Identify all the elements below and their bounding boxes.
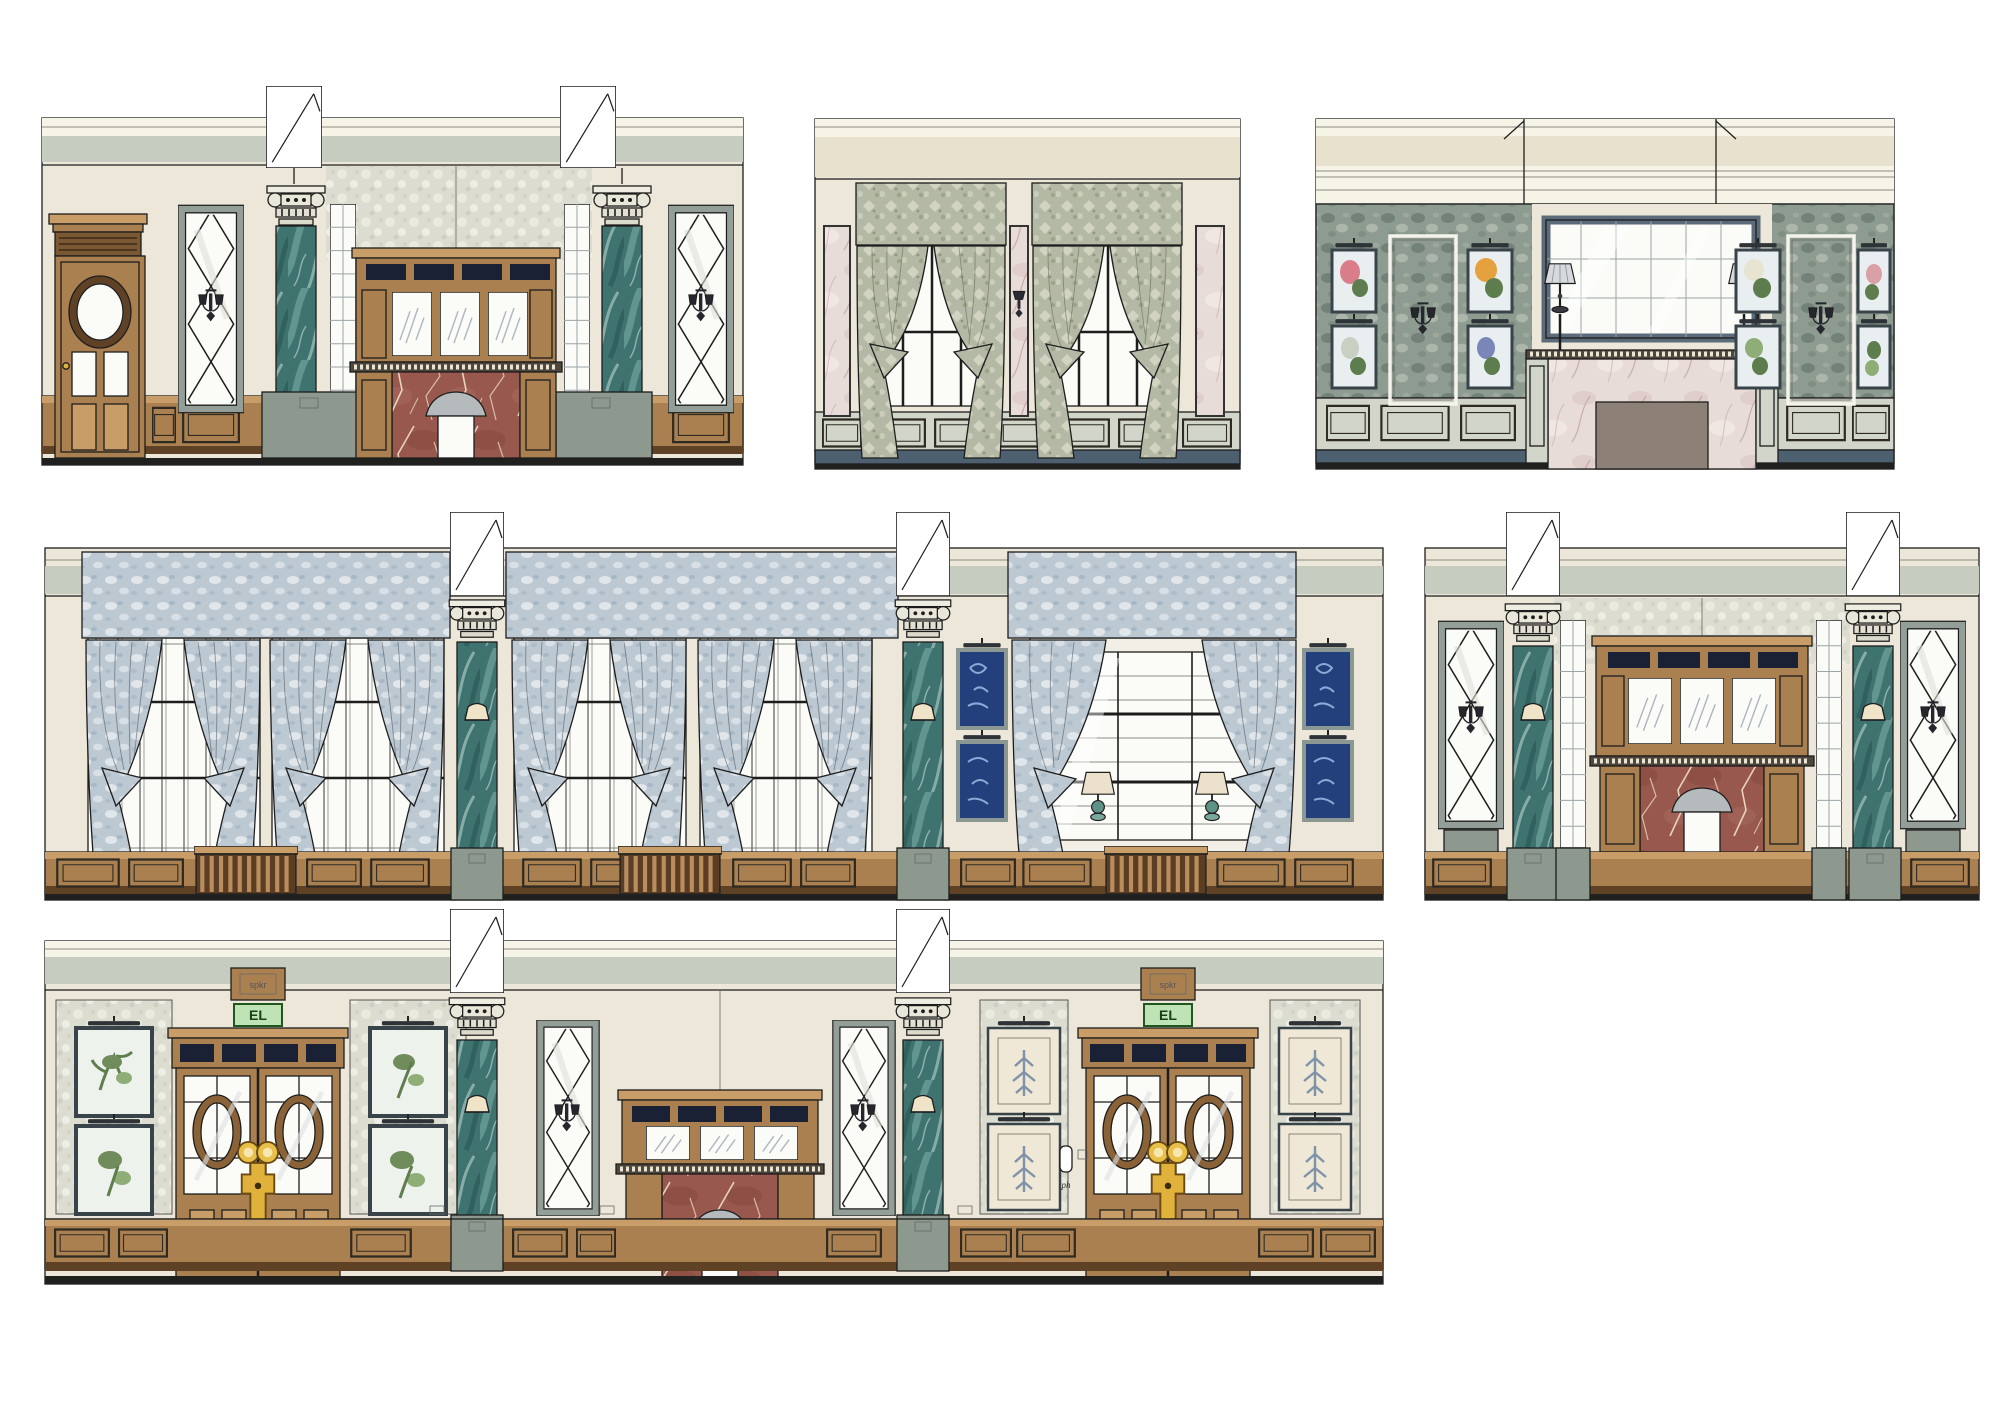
elevation-top-left bbox=[42, 86, 743, 465]
fireplace-overmantel bbox=[350, 248, 562, 458]
half-shade-lamp bbox=[465, 1096, 489, 1113]
ceiling-beam-notch bbox=[450, 512, 504, 596]
radiator-grille bbox=[194, 846, 298, 894]
pink-marble-panel bbox=[824, 226, 850, 416]
valance bbox=[1032, 183, 1182, 245]
firebox bbox=[438, 416, 474, 458]
half-shade-lamp bbox=[911, 1096, 935, 1113]
ceiling-beam-notch bbox=[896, 512, 950, 596]
leaded-glass-window bbox=[1438, 621, 1504, 853]
leaded-glass-window bbox=[178, 205, 244, 437]
ceiling-beam-notch bbox=[450, 909, 504, 993]
elevation-middle-right bbox=[1425, 512, 1979, 900]
ceiling-beam-notch bbox=[266, 86, 322, 168]
teal-marble-pilaster bbox=[457, 1040, 497, 1218]
firebox bbox=[1596, 402, 1708, 469]
elevation-top-middle bbox=[815, 119, 1240, 469]
elevations-drawing: spkr EL bbox=[0, 0, 2000, 1414]
phone-label: ph bbox=[1061, 1180, 1072, 1190]
speaker-label: spkr bbox=[249, 980, 266, 990]
radiator-grille bbox=[618, 846, 722, 894]
valance bbox=[1008, 552, 1296, 638]
entry-door bbox=[49, 214, 147, 458]
cornice-band bbox=[42, 136, 743, 162]
teal-marble-pilaster bbox=[1853, 646, 1893, 852]
damask-wallpaper bbox=[326, 166, 592, 260]
ceiling-beam-notch bbox=[1506, 512, 1560, 596]
teal-marble-pilaster bbox=[903, 642, 943, 852]
ceiling-beam-notch bbox=[560, 86, 616, 168]
door-knob bbox=[63, 363, 69, 369]
elevation-top-right bbox=[1316, 119, 1894, 469]
valance bbox=[506, 552, 898, 638]
mirror-strip bbox=[1560, 620, 1586, 848]
pink-marble-panel bbox=[1196, 226, 1224, 416]
leaded-glass-window bbox=[1900, 621, 1966, 853]
half-shade-lamp bbox=[465, 704, 489, 721]
teal-marble-pilaster bbox=[276, 226, 316, 396]
overmantel-mirror bbox=[1546, 220, 1756, 338]
half-shade-lamp bbox=[1861, 704, 1885, 721]
pink-marble-panel bbox=[1010, 226, 1028, 416]
half-shade-lamp bbox=[911, 704, 935, 721]
mirror-strip bbox=[564, 204, 590, 410]
teal-marble-pilaster bbox=[602, 226, 642, 396]
teal-marble-pilaster bbox=[457, 642, 497, 852]
leaded-glass-window bbox=[668, 205, 734, 437]
teal-marble-pilaster bbox=[903, 1040, 943, 1218]
half-shade-lamp bbox=[1521, 704, 1545, 721]
elevation-bottom-wide: spkr EL bbox=[45, 909, 1383, 1284]
mirror-strip bbox=[1816, 620, 1842, 848]
teal-marble-pilaster bbox=[1513, 646, 1553, 852]
ceiling-beam-notch bbox=[1846, 512, 1900, 596]
elevator-sign-label: EL bbox=[249, 1007, 267, 1023]
valance bbox=[82, 552, 450, 638]
wood-wainscot bbox=[45, 1219, 1383, 1269]
mirror-strip bbox=[330, 204, 356, 410]
elevation-middle-wide bbox=[45, 512, 1383, 900]
ceiling-beam-notch bbox=[896, 909, 950, 993]
valance bbox=[856, 183, 1006, 245]
interior-elevations-sheet: spkr EL bbox=[0, 0, 2000, 1414]
radiator-grille bbox=[1104, 846, 1208, 894]
